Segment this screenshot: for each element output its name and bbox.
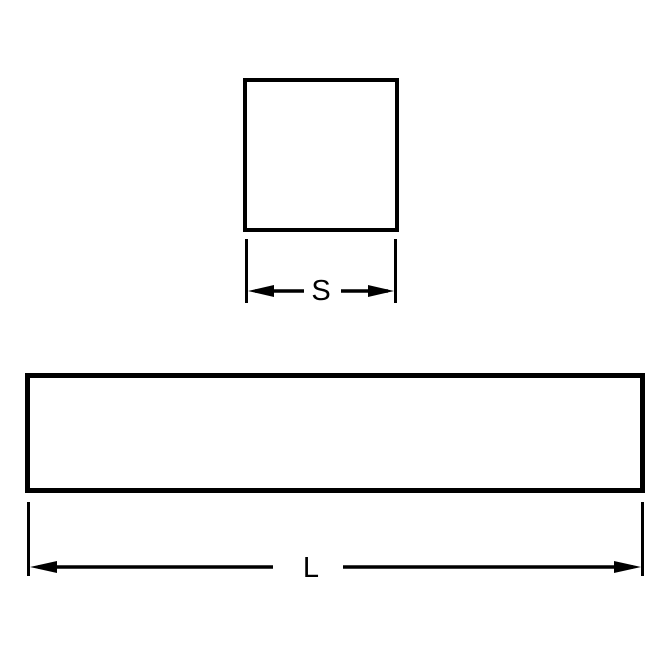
square-cross-section: S: [245, 80, 397, 307]
s-arrowhead-right-icon: [368, 285, 394, 297]
bar-outline: [28, 376, 643, 491]
drawing-canvas: S L: [0, 0, 670, 670]
l-dimension-label: L: [303, 552, 319, 584]
s-arrowhead-left-icon: [248, 285, 274, 297]
dimension-diagram: S L: [0, 0, 670, 670]
l-arrowhead-left-icon: [30, 561, 57, 573]
s-dimension: S: [247, 239, 396, 307]
l-arrowhead-right-icon: [614, 561, 641, 573]
bar-side-view: L: [28, 376, 643, 585]
s-dimension-label: S: [311, 275, 330, 307]
l-dimension: L: [29, 502, 643, 584]
square-outline: [245, 80, 397, 230]
